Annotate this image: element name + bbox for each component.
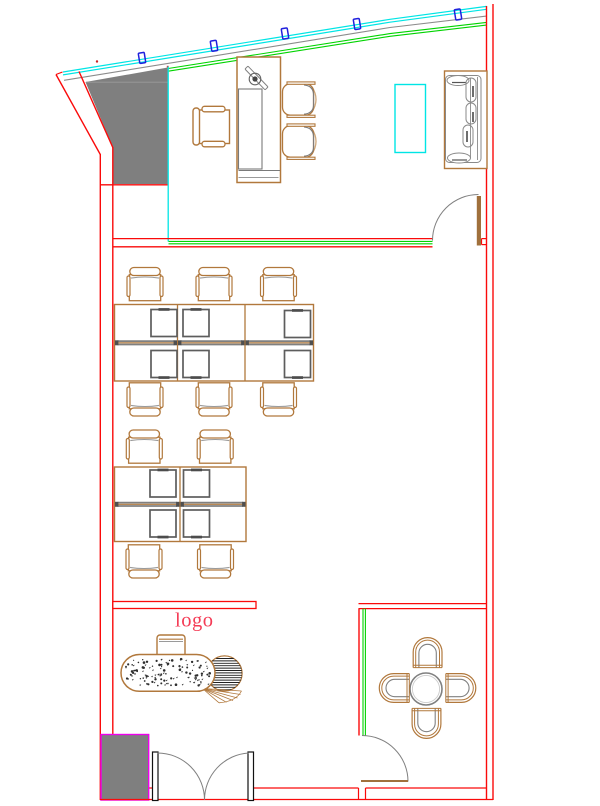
svg-text:logo: logo (175, 610, 213, 632)
